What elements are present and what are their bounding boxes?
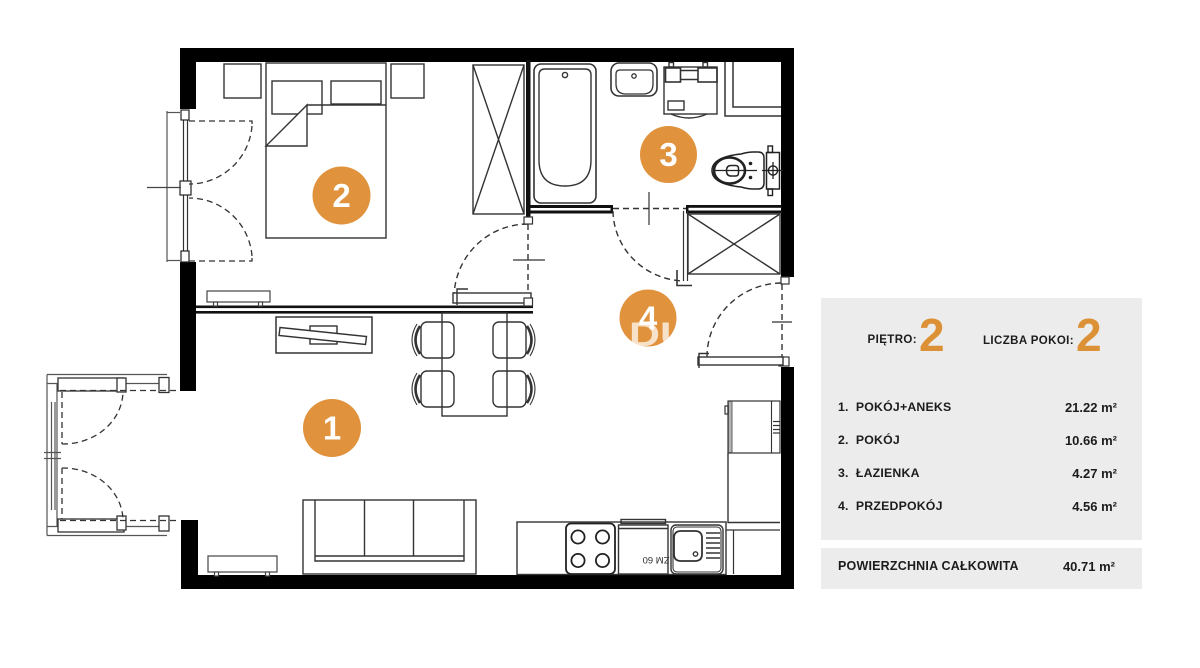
svg-text:DU: DU xyxy=(629,316,691,354)
svg-text:ZM 60: ZM 60 xyxy=(643,554,670,565)
svg-text:2: 2 xyxy=(332,177,350,214)
svg-text:1: 1 xyxy=(323,410,341,447)
svg-text:3: 3 xyxy=(659,136,677,173)
